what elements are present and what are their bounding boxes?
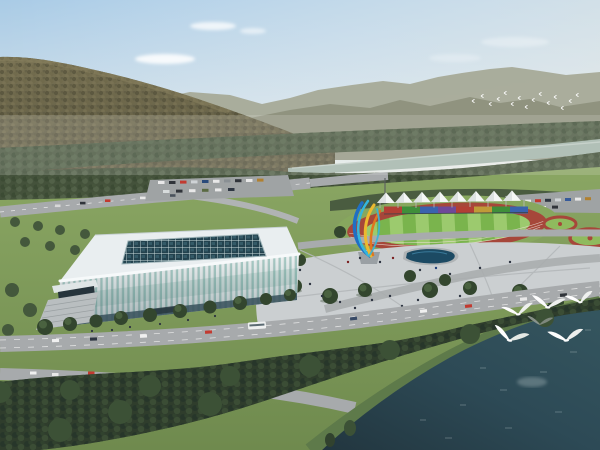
sports-complex-scene <box>0 0 600 450</box>
pond <box>403 247 458 265</box>
bus <box>248 321 266 329</box>
rendering-canvas <box>0 0 600 450</box>
distance-haze <box>0 115 600 175</box>
rainbow-panel-wall <box>384 207 528 215</box>
